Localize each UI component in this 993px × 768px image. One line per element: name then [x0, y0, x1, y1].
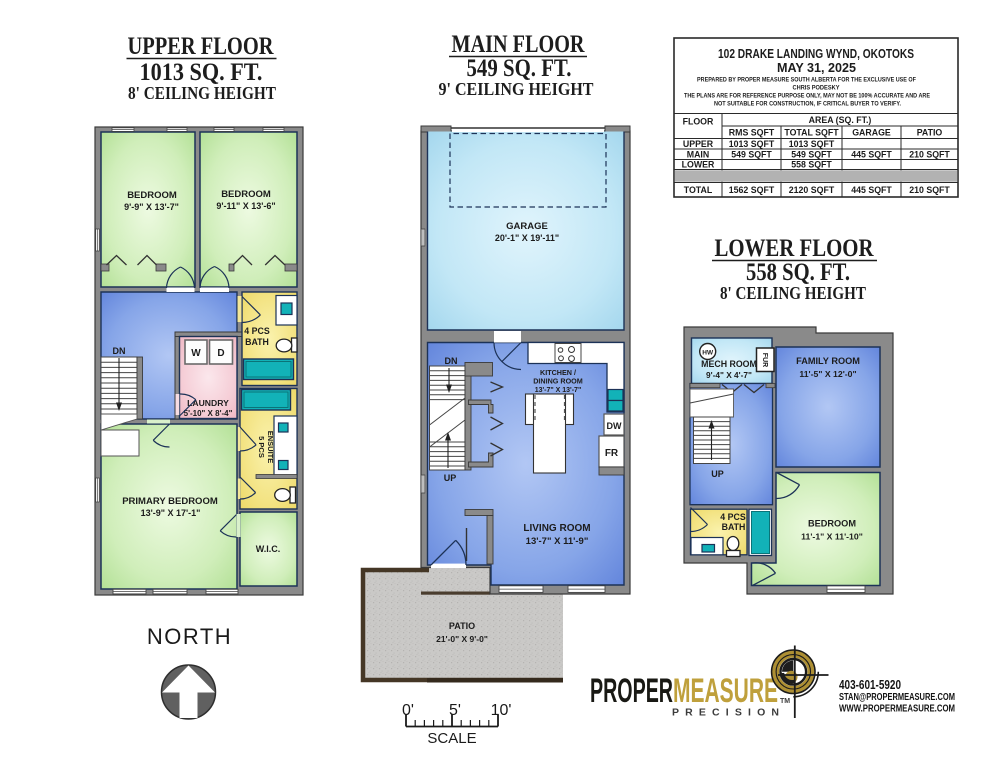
svg-text:FR: FR — [605, 448, 619, 459]
svg-text:9' CEILING HEIGHT: 9' CEILING HEIGHT — [439, 79, 594, 99]
svg-text:BATH: BATH — [245, 337, 269, 347]
svg-text:RMS SQFT: RMS SQFT — [729, 128, 775, 138]
svg-text:STAN@PROPERMEASURE.COM: STAN@PROPERMEASURE.COM — [839, 691, 955, 703]
svg-text:MEASURE: MEASURE — [673, 672, 778, 710]
svg-text:LAUNDRY: LAUNDRY — [187, 398, 229, 408]
svg-text:GARAGE: GARAGE — [506, 221, 548, 232]
svg-text:AREA (SQ. FT.): AREA (SQ. FT.) — [809, 115, 872, 125]
svg-text:MAIN FLOOR: MAIN FLOOR — [452, 31, 586, 58]
svg-text:FUR: FUR — [761, 353, 768, 367]
svg-text:210 SQFT: 210 SQFT — [909, 150, 950, 160]
svg-text:445 SQFT: 445 SQFT — [851, 150, 892, 160]
svg-text:0': 0' — [402, 702, 414, 719]
svg-text:558 SQ. FT.: 558 SQ. FT. — [746, 259, 850, 286]
svg-text:1013 SQFT: 1013 SQFT — [729, 139, 775, 149]
svg-text:5'-10" X 8'-4": 5'-10" X 8'-4" — [184, 409, 233, 418]
svg-text:9'-4" X 4'-7": 9'-4" X 4'-7" — [706, 370, 752, 380]
svg-text:549 SQFT: 549 SQFT — [791, 150, 832, 160]
svg-text:UP: UP — [711, 469, 724, 479]
svg-text:1013 SQ. FT.: 1013 SQ. FT. — [140, 59, 263, 86]
svg-text:WWW.PROPERMEASURE.COM: WWW.PROPERMEASURE.COM — [839, 703, 955, 715]
svg-text:PROPER: PROPER — [590, 672, 673, 710]
svg-text:PREPARED BY PROPER MEASURE SOU: PREPARED BY PROPER MEASURE SOUTH ALBERTA… — [697, 77, 916, 84]
svg-text:SCALE: SCALE — [427, 730, 476, 747]
svg-text:LOWER: LOWER — [682, 160, 715, 170]
svg-text:210 SQFT: 210 SQFT — [909, 185, 950, 195]
svg-text:W.I.C.: W.I.C. — [256, 544, 281, 554]
svg-text:549 SQFT: 549 SQFT — [731, 150, 772, 160]
svg-text:LOWER FLOOR: LOWER FLOOR — [715, 235, 875, 262]
svg-text:CHRIS PODESKY: CHRIS PODESKY — [793, 85, 841, 92]
svg-text:403-601-5920: 403-601-5920 — [839, 677, 901, 692]
svg-text:13'-9" X 17'-1": 13'-9" X 17'-1" — [141, 508, 201, 518]
svg-text:HW: HW — [702, 350, 714, 357]
svg-text:PRIMARY BEDROOM: PRIMARY BEDROOM — [122, 496, 218, 507]
svg-text:1562 SQFT: 1562 SQFT — [729, 185, 775, 195]
svg-text:D: D — [217, 348, 224, 359]
svg-text:FAMILY ROOM: FAMILY ROOM — [796, 356, 860, 366]
svg-text:PATIO: PATIO — [449, 621, 475, 631]
svg-text:13'-7" X 13'-7": 13'-7" X 13'-7" — [535, 387, 582, 394]
svg-text:NOT SUITABLE FOR CONSTRUCTION,: NOT SUITABLE FOR CONSTRUCTION, IF CRITIC… — [714, 101, 901, 108]
svg-text:THE PLANS ARE FOR REFERENCE PU: THE PLANS ARE FOR REFERENCE PURPOSE ONLY… — [684, 93, 931, 100]
svg-text:11'-5" X 12'-0": 11'-5" X 12'-0" — [799, 369, 856, 379]
svg-text:MECH ROOM: MECH ROOM — [701, 359, 757, 369]
svg-text:558 SQFT: 558 SQFT — [791, 160, 832, 170]
svg-text:DW: DW — [607, 421, 622, 431]
svg-text:549 SQ. FT.: 549 SQ. FT. — [467, 55, 572, 82]
svg-text:TM: TM — [780, 698, 790, 705]
svg-text:UPPER FLOOR: UPPER FLOOR — [128, 33, 275, 60]
svg-text:5': 5' — [449, 702, 461, 719]
svg-text:BEDROOM: BEDROOM — [221, 189, 271, 200]
svg-text:BATH: BATH — [722, 522, 746, 532]
svg-text:MAY 31, 2025: MAY 31, 2025 — [777, 60, 856, 75]
svg-text:5 PCS: 5 PCS — [257, 436, 266, 458]
svg-text:13'-7" X 11'-9": 13'-7" X 11'-9" — [526, 536, 589, 547]
svg-text:UPPER: UPPER — [683, 139, 714, 149]
svg-text:TOTAL SQFT: TOTAL SQFT — [784, 128, 839, 138]
svg-text:2120 SQFT: 2120 SQFT — [789, 185, 835, 195]
svg-text:GARAGE: GARAGE — [852, 128, 891, 138]
svg-text:102 DRAKE LANDING WYND, OKOTOK: 102 DRAKE LANDING WYND, OKOTOKS — [718, 46, 914, 61]
svg-text:FLOOR: FLOOR — [683, 117, 714, 127]
svg-text:4 PCS: 4 PCS — [720, 512, 746, 522]
svg-text:4 PCS: 4 PCS — [244, 326, 270, 336]
svg-text:UP: UP — [444, 473, 457, 483]
svg-text:445 SQFT: 445 SQFT — [851, 185, 892, 195]
svg-text:NORTH: NORTH — [147, 624, 232, 649]
svg-text:MAIN: MAIN — [687, 150, 709, 160]
svg-text:LIVING ROOM: LIVING ROOM — [523, 523, 590, 534]
svg-text:1013 SQFT: 1013 SQFT — [789, 139, 835, 149]
svg-text:BEDROOM: BEDROOM — [808, 519, 856, 529]
svg-text:PRECISION: PRECISION — [672, 707, 779, 719]
svg-text:21'-0" X 9'-0": 21'-0" X 9'-0" — [436, 634, 488, 644]
svg-text:BEDROOM: BEDROOM — [127, 190, 177, 201]
svg-text:DINING ROOM: DINING ROOM — [533, 377, 583, 386]
svg-text:TOTAL: TOTAL — [684, 185, 713, 195]
svg-text:8' CEILING HEIGHT: 8' CEILING HEIGHT — [128, 83, 276, 103]
svg-text:11'-1" X 11'-10": 11'-1" X 11'-10" — [801, 532, 863, 542]
svg-text:8' CEILING HEIGHT: 8' CEILING HEIGHT — [720, 283, 866, 303]
svg-text:9'-11" X 13'-6": 9'-11" X 13'-6" — [216, 201, 275, 211]
svg-text:10': 10' — [491, 702, 512, 719]
svg-text:PATIO: PATIO — [917, 128, 943, 138]
svg-text:9'-9" X 13'-7": 9'-9" X 13'-7" — [124, 202, 179, 212]
svg-text:W: W — [191, 348, 201, 359]
svg-text:20'-1" X 19'-11": 20'-1" X 19'-11" — [495, 233, 559, 243]
svg-text:DN: DN — [113, 346, 126, 356]
svg-text:DN: DN — [445, 356, 458, 366]
